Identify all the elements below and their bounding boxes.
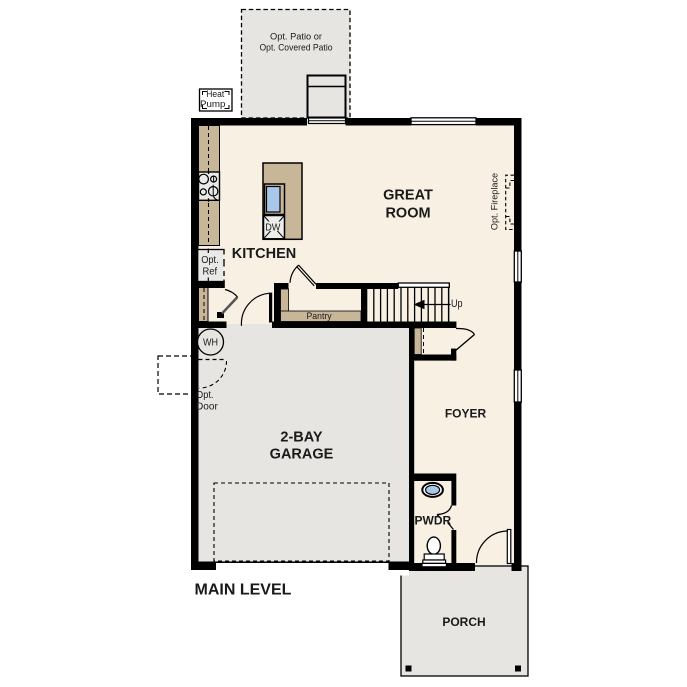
svg-text:ROOM: ROOM xyxy=(385,206,430,222)
svg-text:Pump: Pump xyxy=(200,99,226,109)
svg-text:Door: Door xyxy=(196,402,218,413)
svg-text:Opt.: Opt. xyxy=(201,255,219,266)
svg-text:Heat: Heat xyxy=(206,89,224,99)
svg-text:2-BAY: 2-BAY xyxy=(280,430,323,446)
svg-text:GREAT: GREAT xyxy=(383,188,433,204)
svg-text:Opt.: Opt. xyxy=(196,390,214,401)
svg-text:Pantry: Pantry xyxy=(307,311,332,322)
svg-text:PWDR: PWDR xyxy=(415,514,452,528)
svg-text:WH: WH xyxy=(203,338,218,349)
svg-text:PORCH: PORCH xyxy=(442,615,485,629)
svg-text:Opt. Covered Patio: Opt. Covered Patio xyxy=(260,42,333,53)
svg-text:Ref: Ref xyxy=(203,267,218,278)
svg-text:KITCHEN: KITCHEN xyxy=(232,246,296,262)
svg-text:Opt. Patio or: Opt. Patio or xyxy=(270,32,322,43)
svg-text:MAIN LEVEL: MAIN LEVEL xyxy=(195,582,292,599)
svg-text:Opt. Fireplace: Opt. Fireplace xyxy=(490,173,501,230)
svg-text:FOYER: FOYER xyxy=(445,407,487,421)
svg-text:Up: Up xyxy=(451,298,463,310)
svg-text:GARAGE: GARAGE xyxy=(270,447,334,463)
svg-text:DW: DW xyxy=(265,221,280,233)
